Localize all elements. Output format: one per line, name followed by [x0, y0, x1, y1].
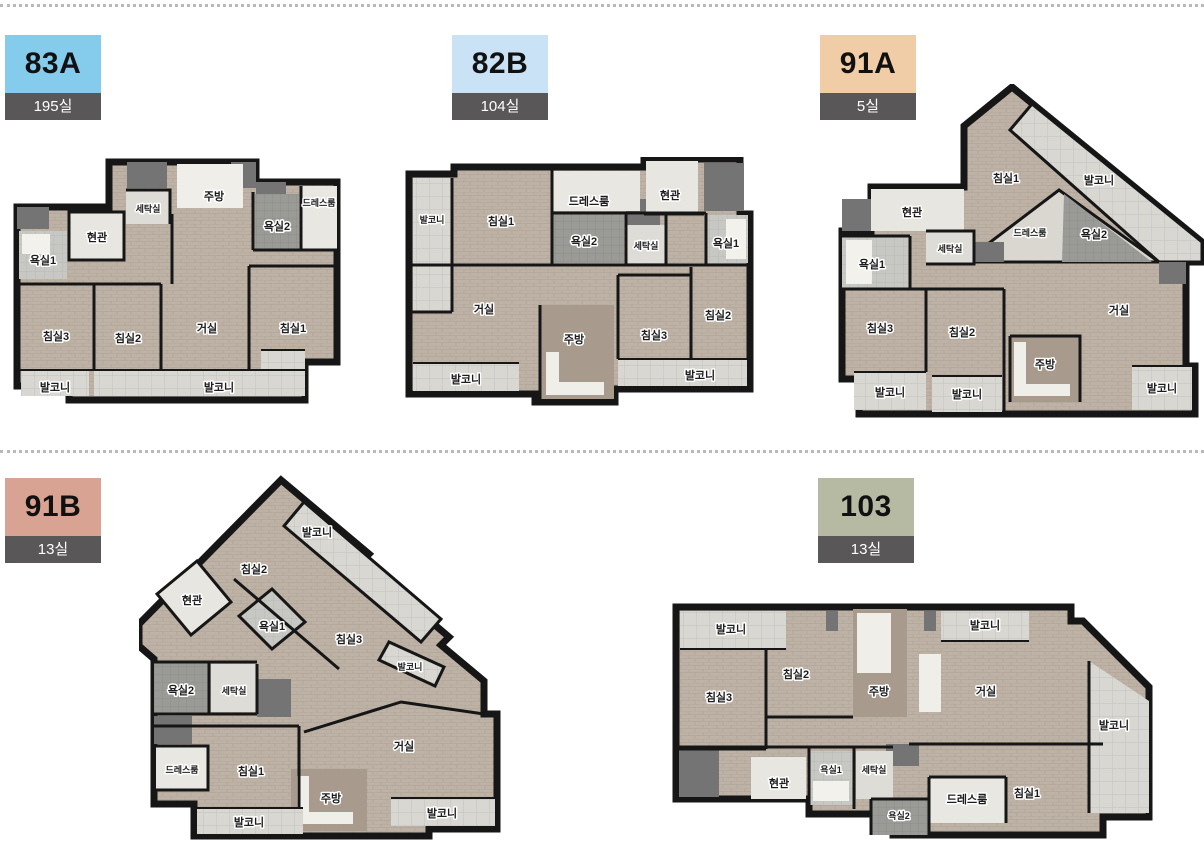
room-label-balcony: 발코니	[234, 815, 264, 829]
room-label-bath2: 욕실2	[264, 219, 290, 233]
room-label-balcony: 발코니	[40, 380, 70, 394]
room-label-balcony: 발코니	[204, 380, 234, 394]
room-label-balcony: 발코니	[875, 385, 905, 399]
room-label-laundry: 세탁실	[862, 764, 887, 775]
room-label-bath2: 욕실2	[1081, 227, 1107, 241]
room-label-entrance: 현관	[182, 593, 202, 607]
floorplan-91B: 발코니 침실2 현관 욕실1 침실3 발코니 욕실2 세탁실 드레스룸 침실1 …	[139, 474, 505, 844]
room-label-bed2: 침실2	[783, 667, 809, 681]
floor-areas	[842, 87, 1202, 414]
plan-badge-82B: 82B 104실	[452, 35, 548, 120]
room-label-bed2: 침실2	[115, 331, 141, 345]
room-label-balcony: 발코니	[970, 618, 1000, 632]
room-label-living: 거실	[976, 684, 996, 698]
plan-badge-91B: 91B 13실	[5, 478, 101, 563]
plan-name: 82B	[452, 35, 548, 93]
room-label-balcony: 발코니	[420, 214, 445, 225]
room-label-kitchen: 주방	[869, 684, 889, 698]
room-label-bed3: 침실3	[706, 690, 732, 704]
room-label-bath1: 욕실1	[30, 253, 56, 267]
plan-badge-103: 103 13실	[818, 478, 914, 563]
floorplan-82B: 발코니 침실1 드레스룸 현관 욕실2 세탁실 욕실1 거실 주방 침실3 침실…	[404, 157, 757, 411]
plan-unit-count: 195실	[5, 93, 101, 120]
room-label-kitchen: 주방	[1035, 357, 1055, 371]
room-label-bed1: 침실1	[238, 764, 264, 778]
plan-unit-count: 13실	[5, 536, 101, 563]
floor-areas	[17, 162, 337, 400]
room-label-balcony: 발코니	[1084, 173, 1114, 187]
room-label-bed2: 침실2	[949, 325, 975, 339]
room-label-balcony: 발코니	[427, 806, 457, 820]
room-label-bath2: 욕실2	[571, 234, 597, 248]
plan-unit-count: 104실	[452, 93, 548, 120]
room-label-entrance: 현관	[660, 188, 680, 202]
dotted-divider-top	[0, 4, 1204, 7]
room-label-balcony: 발코니	[1099, 718, 1129, 732]
room-label-bed1: 침실1	[280, 321, 306, 335]
room-label-living: 거실	[474, 302, 494, 316]
room-label-bath1: 욕실1	[259, 619, 285, 633]
room-label-kitchen: 주방	[204, 189, 224, 203]
room-label-laundry: 세탁실	[634, 240, 659, 251]
plan-badge-91A: 91A 5실	[820, 35, 916, 120]
room-label-bed3: 침실3	[867, 321, 893, 335]
room-label-living: 거실	[394, 739, 414, 753]
room-label-balcony: 발코니	[685, 368, 715, 382]
room-label-bath1: 욕실1	[859, 257, 885, 271]
room-label-kitchen: 주방	[564, 332, 584, 346]
room-label-laundry: 세탁실	[222, 685, 247, 696]
dotted-divider-middle	[0, 450, 1204, 453]
room-label-dressroom: 드레스룸	[165, 764, 198, 775]
room-label-living: 거실	[197, 321, 217, 335]
room-label-bed1: 침실1	[993, 171, 1019, 185]
plan-name: 83A	[5, 35, 101, 93]
room-label-entrance: 현관	[902, 205, 922, 219]
room-label-bath2: 욕실2	[888, 810, 910, 821]
plan-name: 91A	[820, 35, 916, 93]
room-label-dressroom: 드레스룸	[947, 792, 987, 806]
room-label-bed3: 침실3	[336, 632, 362, 646]
room-label-laundry: 세탁실	[938, 243, 963, 254]
room-label-bed1: 침실1	[1014, 786, 1040, 800]
room-label-balcony: 발코니	[716, 622, 746, 636]
room-label-balcony: 발코니	[952, 387, 982, 401]
room-label-dressroom: 드레스룸	[1013, 227, 1046, 238]
room-label-balcony: 발코니	[398, 661, 423, 672]
room-label-dressroom: 드레스룸	[569, 194, 609, 208]
room-label-entrance: 현관	[87, 230, 107, 244]
room-label-bath1: 욕실1	[713, 236, 739, 250]
room-label-living: 거실	[1109, 303, 1129, 317]
room-label-dressroom: 드레스룸	[302, 197, 335, 208]
plan-badge-83A: 83A 195실	[5, 35, 101, 120]
room-label-bed1: 침실1	[488, 214, 514, 228]
room-label-laundry: 세탁실	[136, 203, 161, 214]
floorplan-83A: 주방 세탁실 드레스룸 현관 욕실2 욕실1 침실3 침실2 거실 침실1 발코…	[9, 154, 345, 414]
floor-areas	[676, 607, 1149, 835]
plan-unit-count: 13실	[818, 536, 914, 563]
room-label-bed2: 침실2	[705, 308, 731, 322]
room-label-balcony: 발코니	[451, 372, 481, 386]
floorplan-91A: 침실1 발코니 드레스룸 욕실2 현관 세탁실 욕실1 침실3 침실2 거실 주…	[814, 84, 1204, 422]
floorplan-103: 발코니 침실2 침실3 주방 거실 발코니 발코니 현관 욕실1 세탁실 욕실2…	[671, 599, 1163, 844]
room-label-bath2: 욕실2	[168, 683, 194, 697]
plan-name: 103	[818, 478, 914, 536]
room-label-kitchen: 주방	[321, 791, 341, 805]
room-label-bed3: 침실3	[43, 329, 69, 343]
plan-name: 91B	[5, 478, 101, 536]
room-label-bed3: 침실3	[641, 328, 667, 342]
room-label-bed2: 침실2	[241, 562, 267, 576]
room-label-entrance: 현관	[769, 776, 789, 790]
room-label-balcony: 발코니	[302, 525, 332, 539]
room-label-bath1: 욕실1	[820, 764, 842, 775]
room-label-balcony: 발코니	[1147, 381, 1177, 395]
plan-unit-count: 5실	[820, 93, 916, 120]
